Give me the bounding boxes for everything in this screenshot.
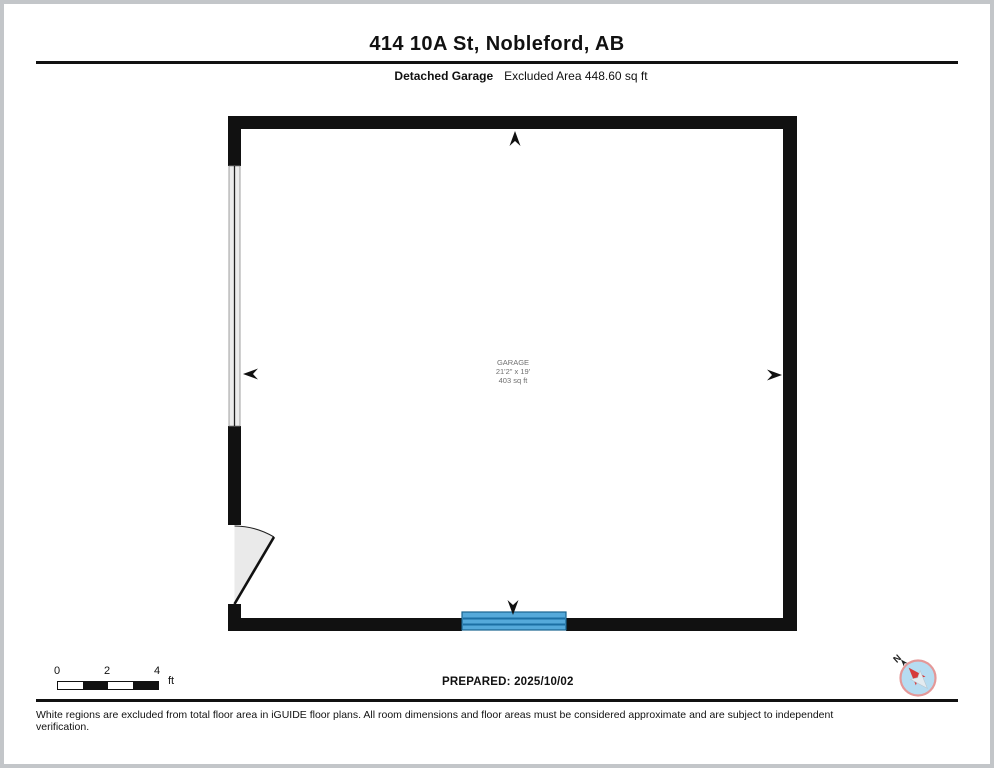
scale-bar-strip [57,681,159,690]
room-label: GARAGE 21'2" x 19' 403 sq ft [453,358,573,385]
garage-door [462,612,566,630]
scale-tick-0: 0 [54,665,60,677]
scale-tick-labels: 0 2 4 [57,665,247,679]
scale-bar: 0 2 4 ft [57,665,247,690]
door [235,526,275,604]
floorplan-page: 414 10A St, Nobleford, AB Detached Garag… [0,0,994,768]
dimension-arrow-right-icon [767,370,782,381]
scale-segment [58,682,83,689]
scale-tick-4: 4 [154,665,160,677]
room-name: GARAGE [453,358,573,367]
scale-segment [83,682,108,689]
dimension-arrow-up-icon [510,131,521,146]
dimension-arrow-left-icon [243,369,258,380]
room-area: 403 sq ft [453,376,573,385]
compass-icon: N [891,653,935,696]
scale-segment [108,682,133,689]
disclaimer-text: White regions are excluded from total fl… [36,709,836,733]
window [229,166,240,426]
scale-segment [133,682,158,689]
scale-unit-label: ft [168,675,174,687]
footer-divider [36,699,958,702]
room-dimensions: 21'2" x 19' [453,367,573,376]
north-label: N [891,653,904,666]
prepared-date: PREPARED: 2025/10/02 [442,676,574,688]
scale-tick-2: 2 [104,665,110,677]
